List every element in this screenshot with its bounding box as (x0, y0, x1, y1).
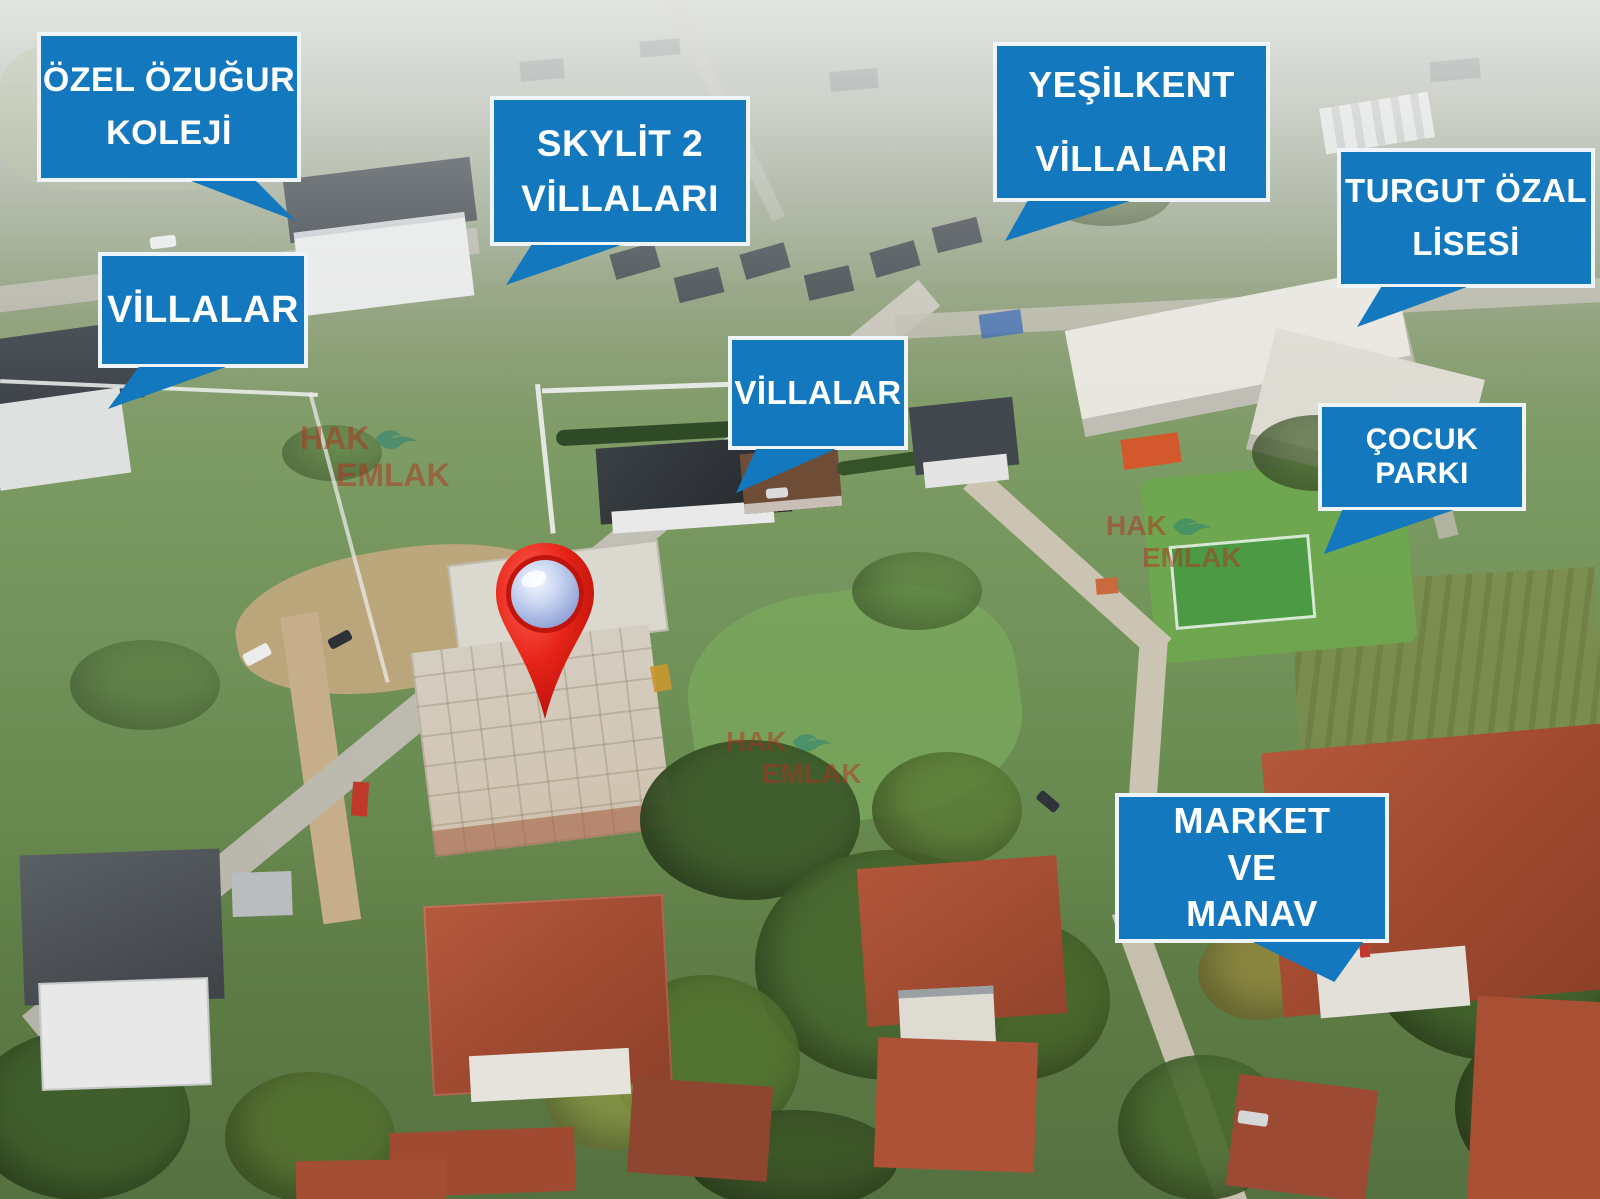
house-red-roof (1226, 1074, 1379, 1199)
playground-equipment (1095, 577, 1118, 595)
callout-label: SKYLİT 2 VİLLALARI (494, 116, 746, 227)
watermark-word2: EMLAK (1142, 542, 1242, 573)
house-red-roof (1467, 996, 1600, 1199)
seagull-icon (371, 426, 423, 452)
location-pin-icon (492, 541, 598, 723)
seagull-icon (1169, 514, 1217, 538)
red-truck (351, 781, 369, 816)
callout-label: YEŞİLKENT VİLLALARI (997, 48, 1266, 196)
house-red-roof (874, 1037, 1038, 1173)
garage (231, 871, 292, 917)
watermark-word2: EMLAK (336, 457, 450, 493)
watermark-word1: HAK (1106, 510, 1167, 542)
callout-yesilkent-villalari: YEŞİLKENT VİLLALARI (993, 42, 1270, 202)
car (766, 487, 789, 499)
seagull-icon (789, 730, 837, 754)
callout-label: ÖZEL ÖZUĞUR KOLEJİ (41, 54, 297, 159)
bushes (70, 640, 220, 730)
callout-villalar-left: VİLLALAR (98, 252, 308, 368)
watermark-word2: EMLAK (762, 758, 862, 789)
callout-market-ve-manav: MARKET VE MANAV (1115, 793, 1389, 943)
tree-cluster (872, 752, 1022, 867)
callout-turgut-ozal-lisesi: TURGUT ÖZAL LİSESİ (1337, 148, 1595, 288)
callout-skylit2-villalari: SKYLİT 2 VİLLALARI (490, 96, 750, 246)
callout-cocuk-parki: ÇOCUK PARKI (1318, 403, 1526, 511)
callout-villalar-center: VİLLALAR (728, 336, 908, 450)
callout-label: VİLLALAR (732, 374, 904, 412)
callout-label: TURGUT ÖZAL LİSESİ (1341, 165, 1591, 271)
house-red-roof (627, 1077, 773, 1182)
watermark-hak-emlak: HAK EMLAK (1106, 510, 1242, 574)
house-red-roof (296, 1159, 447, 1199)
apartment-wall (38, 977, 212, 1091)
watermark-word1: HAK (726, 726, 787, 758)
distant-building (519, 58, 565, 82)
watermark-word1: HAK (300, 420, 369, 457)
annotated-aerial-photo: HAK EMLAK HAK EMLAK HAK EMLAK (0, 0, 1600, 1199)
watermark-hak-emlak: HAK EMLAK (300, 420, 450, 494)
house-wall (469, 1048, 631, 1102)
watermark-hak-emlak: HAK EMLAK (726, 726, 862, 790)
callout-label: VİLLALAR (102, 289, 304, 332)
callout-label: ÇOCUK PARKI (1322, 423, 1522, 491)
bushes (852, 552, 982, 630)
callout-label: MARKET VE MANAV (1119, 798, 1385, 938)
callout-ozel-ozugur-koleji: ÖZEL ÖZUĞUR KOLEJİ (37, 32, 301, 182)
distant-building (829, 68, 879, 92)
